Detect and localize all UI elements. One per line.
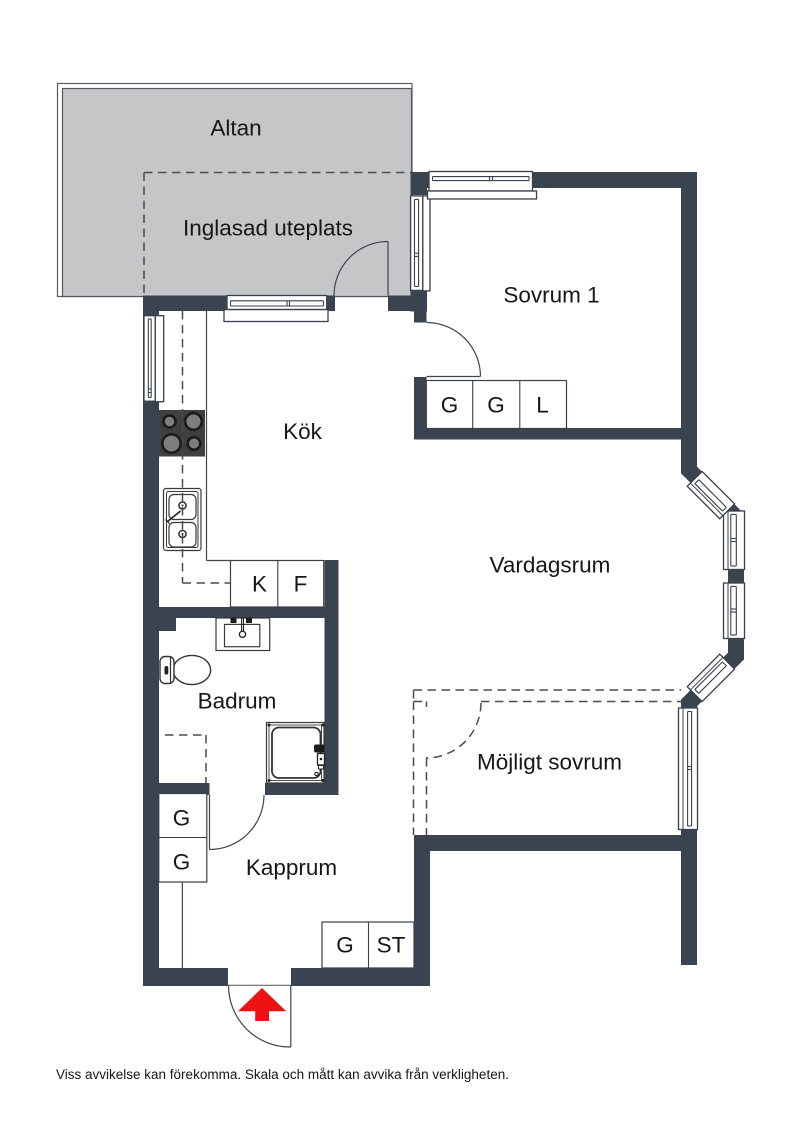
svg-text:Altan: Altan xyxy=(210,116,261,141)
svg-text:G: G xyxy=(173,850,191,875)
svg-text:L: L xyxy=(536,393,549,418)
svg-text:Inglasad uteplats: Inglasad uteplats xyxy=(183,216,353,241)
svg-text:Kapprum: Kapprum xyxy=(246,855,337,880)
svg-text:G: G xyxy=(487,393,505,418)
svg-text:Viss avvikelse kan förekomma.: Viss avvikelse kan förekomma. Skala och … xyxy=(56,1067,509,1082)
svg-text:G: G xyxy=(336,933,354,958)
svg-text:Möjligt sovrum: Möjligt sovrum xyxy=(477,750,622,775)
svg-text:F: F xyxy=(294,572,308,597)
svg-text:K: K xyxy=(252,572,267,597)
svg-text:Badrum: Badrum xyxy=(198,689,277,714)
svg-text:Vardagsrum: Vardagsrum xyxy=(490,553,611,578)
svg-text:Kök: Kök xyxy=(283,419,323,444)
svg-text:G: G xyxy=(173,806,191,831)
svg-text:ST: ST xyxy=(377,933,406,958)
svg-text:G: G xyxy=(441,393,459,418)
svg-text:Sovrum 1: Sovrum 1 xyxy=(503,283,599,308)
